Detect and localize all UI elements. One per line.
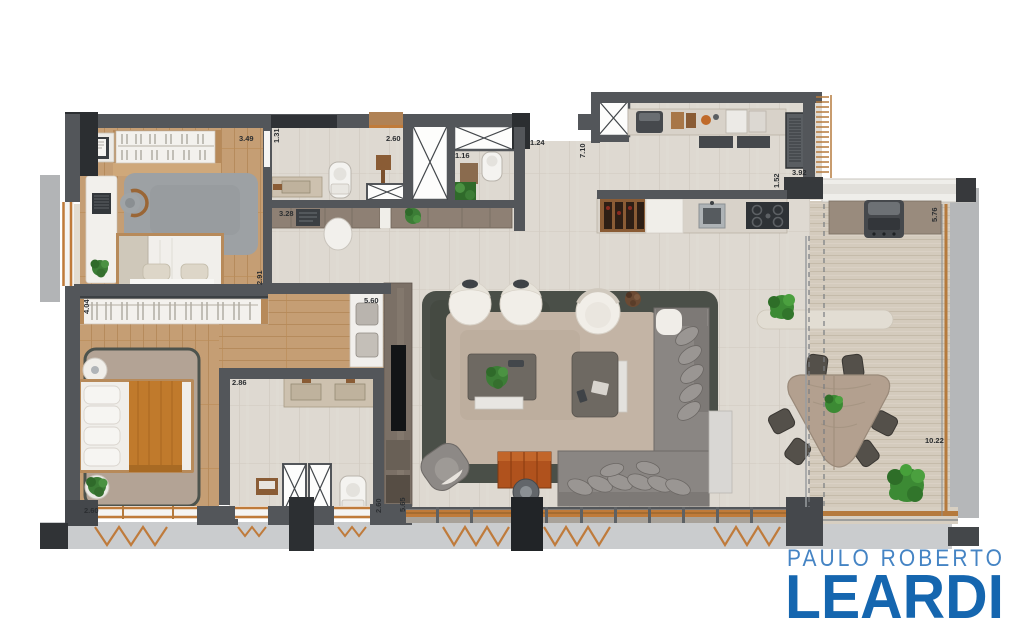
svg-text:3.28: 3.28 [279, 209, 294, 218]
svg-text:2.60: 2.60 [84, 506, 99, 515]
svg-text:1.52: 1.52 [772, 173, 781, 188]
svg-text:5.65: 5.65 [398, 497, 407, 512]
svg-text:1.16: 1.16 [455, 151, 470, 160]
svg-text:2.91: 2.91 [255, 270, 264, 285]
svg-text:1.24: 1.24 [530, 138, 545, 147]
svg-text:7.10: 7.10 [578, 143, 587, 158]
svg-text:5.60: 5.60 [364, 296, 379, 305]
svg-text:5.76: 5.76 [930, 207, 939, 222]
svg-text:3.92: 3.92 [792, 168, 807, 177]
svg-text:3.49: 3.49 [239, 134, 254, 143]
svg-text:10.22: 10.22 [925, 436, 944, 445]
svg-text:LEARDI: LEARDI [785, 563, 1004, 632]
svg-text:2.60: 2.60 [374, 498, 383, 513]
svg-text:2.86: 2.86 [232, 378, 247, 387]
svg-text:4.04: 4.04 [82, 299, 91, 314]
svg-text:1.31: 1.31 [272, 128, 281, 143]
svg-text:2.60: 2.60 [386, 134, 401, 143]
